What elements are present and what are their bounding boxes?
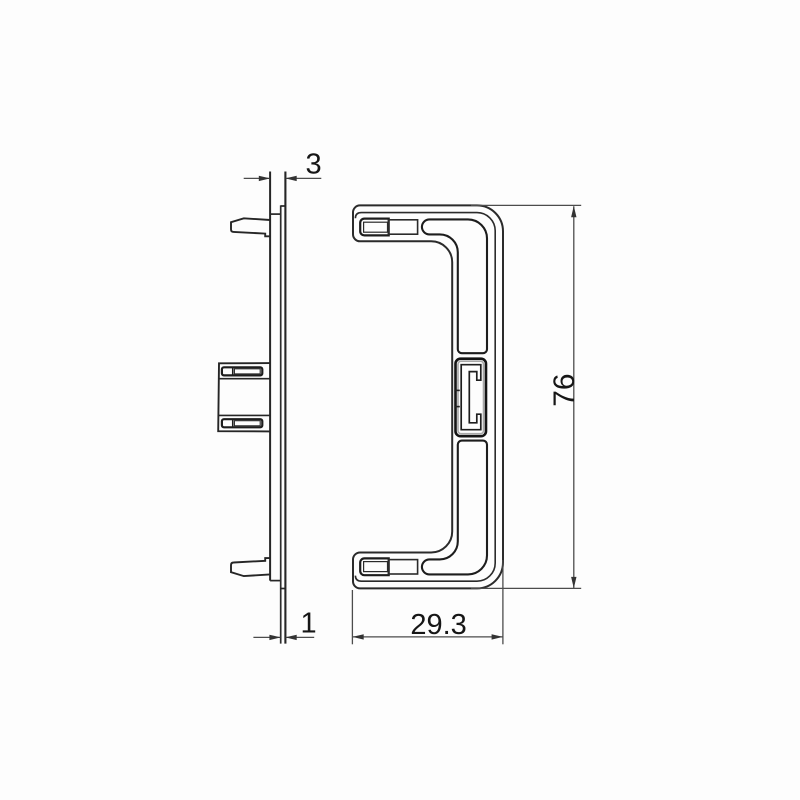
svg-text:1: 1: [301, 608, 317, 640]
svg-text:29.3: 29.3: [410, 609, 466, 641]
svg-text:3: 3: [306, 148, 322, 180]
svg-text:76: 76: [548, 373, 581, 406]
